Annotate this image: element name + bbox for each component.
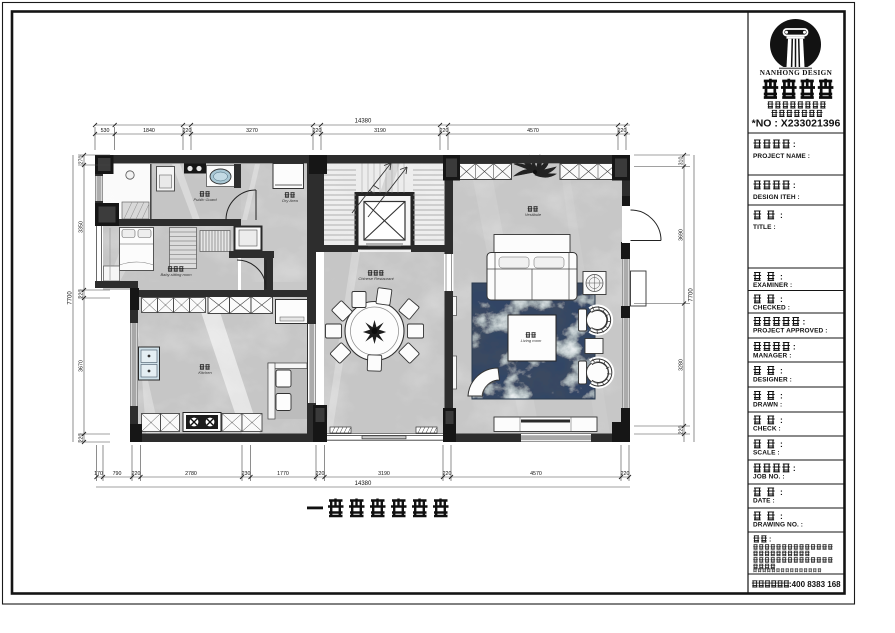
svg-text:Public Guard: Public Guard: [193, 197, 217, 202]
svg-text:DRAWING NO. :: DRAWING NO. :: [753, 522, 803, 529]
svg-text:Living room: Living room: [521, 338, 542, 343]
svg-text:Chinese Restaurant: Chinese Restaurant: [358, 276, 394, 281]
svg-text::: :: [793, 139, 796, 149]
svg-text:220: 220: [313, 128, 322, 134]
svg-text:PROJECT APPROVED :: PROJECT APPROVED :: [753, 328, 828, 335]
svg-text:170: 170: [94, 471, 103, 477]
svg-text:790: 790: [113, 471, 122, 477]
svg-text:DRAWN :: DRAWN :: [753, 402, 782, 409]
svg-text:7700: 7700: [689, 288, 695, 302]
svg-text::: :: [803, 317, 806, 327]
svg-text:230: 230: [242, 471, 251, 477]
svg-text:Baby-sitting room: Baby-sitting room: [160, 272, 192, 277]
svg-text:220: 220: [679, 426, 685, 435]
svg-text:220: 220: [132, 471, 141, 477]
svg-text:SCALE :: SCALE :: [753, 450, 780, 457]
svg-text:1840: 1840: [143, 128, 155, 134]
svg-text:TITLE :: TITLE :: [753, 224, 776, 231]
svg-text:14380: 14380: [355, 119, 372, 125]
svg-text::: :: [780, 487, 783, 497]
svg-text:NANHONG DESIGN: NANHONG DESIGN: [760, 69, 833, 77]
svg-text::: :: [780, 366, 783, 376]
svg-text::: :: [793, 342, 796, 352]
svg-text:4570: 4570: [527, 128, 539, 134]
svg-text:3190: 3190: [374, 128, 386, 134]
svg-text:*NO : X233021396: *NO : X233021396: [752, 118, 841, 130]
svg-text:14380: 14380: [355, 481, 372, 487]
svg-text:220: 220: [79, 290, 85, 299]
svg-text:3350: 3350: [79, 221, 85, 233]
svg-text::: :: [780, 391, 783, 401]
svg-text:DATE :: DATE :: [753, 498, 775, 505]
svg-text:310: 310: [679, 157, 685, 166]
svg-text::: :: [780, 415, 783, 425]
svg-text::: :: [780, 511, 783, 521]
svg-text:220: 220: [443, 471, 452, 477]
svg-text:220: 220: [183, 128, 192, 134]
svg-text:3190: 3190: [378, 471, 390, 477]
svg-text:220: 220: [618, 128, 627, 134]
svg-text:4570: 4570: [530, 471, 542, 477]
svg-text:530: 530: [101, 128, 110, 134]
svg-text:JOB NO. :: JOB NO. :: [753, 474, 785, 481]
svg-text:2780: 2780: [185, 471, 197, 477]
svg-text::400 8383 168: :400 8383 168: [789, 580, 841, 589]
svg-text:220: 220: [621, 471, 630, 477]
svg-text:220: 220: [440, 128, 449, 134]
svg-text:Kitchen: Kitchen: [198, 370, 212, 375]
svg-text::: :: [780, 294, 783, 304]
svg-text:270: 270: [79, 156, 85, 165]
svg-text::: :: [780, 439, 783, 449]
svg-text:CHECK :: CHECK :: [753, 426, 781, 433]
svg-text:MANAGER :: MANAGER :: [753, 353, 791, 360]
svg-text::: :: [793, 180, 796, 190]
svg-text:EXAMINER :: EXAMINER :: [753, 282, 792, 289]
svg-text:220: 220: [316, 471, 325, 477]
svg-text::: :: [793, 463, 796, 473]
svg-text:3270: 3270: [246, 128, 258, 134]
svg-text::: :: [769, 537, 771, 544]
svg-text:CHECKED :: CHECKED :: [753, 305, 790, 312]
svg-text:1770: 1770: [277, 471, 289, 477]
svg-text:3670: 3670: [79, 360, 85, 372]
svg-text:DESIGNER :: DESIGNER :: [753, 377, 792, 384]
svg-text:7700: 7700: [68, 291, 74, 305]
svg-text::: :: [780, 272, 783, 282]
svg-text:PROJECT NAME :: PROJECT NAME :: [753, 153, 810, 160]
svg-text:Vestibule: Vestibule: [525, 212, 542, 217]
svg-text:3280: 3280: [679, 359, 685, 371]
svg-text:220: 220: [79, 434, 85, 443]
svg-text:3690: 3690: [679, 229, 685, 241]
svg-text::: :: [780, 210, 783, 220]
svg-text:Dry Area: Dry Area: [282, 198, 298, 203]
svg-text:DESIGN ITEH :: DESIGN ITEH :: [753, 194, 800, 201]
